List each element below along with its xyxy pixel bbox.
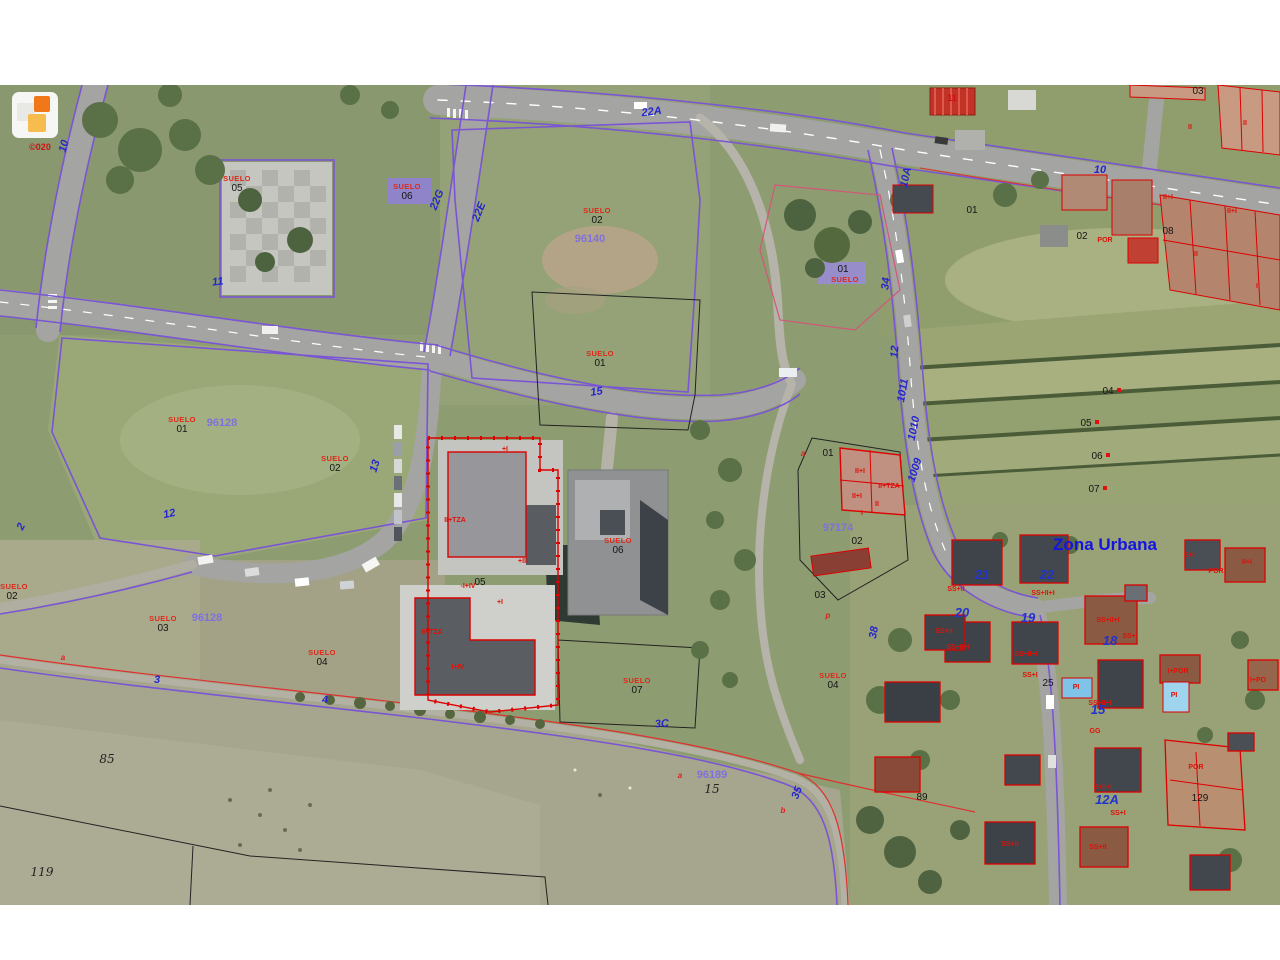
label-roadnum: 3C: [654, 717, 670, 730]
label-num: 06: [1091, 451, 1103, 462]
label-storey: SS+II: [935, 628, 952, 635]
logo-orange-square: [34, 96, 50, 112]
label-storey: PI: [1171, 692, 1178, 699]
label-suelo: SUELO: [831, 275, 859, 284]
label-num: 89: [916, 792, 928, 803]
label-copyright: ©020: [29, 142, 51, 152]
label-storey: SS+I: [1022, 672, 1037, 679]
label-suelo: SUELO: [321, 454, 349, 463]
label-reda: b: [781, 806, 786, 815]
label-storey: POR: [1208, 568, 1223, 575]
label-reda: a: [61, 653, 66, 662]
label-storey: II+TZA: [421, 629, 443, 636]
label-storey: SS+I: [1110, 810, 1125, 817]
label-housenum: 21: [974, 567, 989, 582]
label-num: 07: [631, 685, 643, 696]
label-storey: II+I: [1227, 208, 1237, 215]
label-num: 01: [176, 424, 188, 435]
label-num: 25: [1042, 678, 1054, 689]
label-storey: I: [861, 510, 863, 517]
label-storey: II+I: [852, 493, 862, 500]
label-storey: SS+II: [1001, 841, 1018, 848]
label-blacknum: 119: [31, 865, 54, 879]
label-storey: SS+II+I: [1088, 700, 1111, 707]
label-redbig: 11: [947, 93, 957, 103]
label-reda: a: [678, 771, 683, 780]
label-num: 02: [329, 463, 341, 474]
label-suelo: SUELO: [308, 648, 336, 657]
label-storey: POR: [1188, 764, 1203, 771]
label-num: 05: [1080, 418, 1092, 429]
label-num: 02: [6, 591, 18, 602]
map-viewport[interactable]: ©020SUELO05SUELO06SUELO02SUELO01SUELO01S…: [0, 0, 1280, 960]
label-num: 02: [851, 536, 863, 547]
logo-yellow-square: [28, 114, 46, 132]
label-storey: II: [1188, 124, 1192, 131]
label-purple: 96128: [192, 612, 223, 624]
label-num: 03: [157, 623, 169, 634]
label-suelo: SUELO: [0, 582, 28, 591]
label-purple: 96128: [207, 417, 238, 429]
label-purple: 97174: [823, 522, 854, 534]
label-num: 03: [1192, 86, 1204, 97]
label-storey: POR: [1097, 237, 1112, 244]
label-roadnum: 34: [879, 277, 892, 291]
label-storey: -I+IV: [461, 583, 476, 590]
label-purple: 96140: [575, 233, 606, 245]
label-housenum: 22: [1039, 567, 1055, 582]
label-storey: SS+I: [1122, 633, 1137, 640]
label-num: 06: [401, 191, 413, 202]
label-storey: +III: [518, 558, 528, 565]
label-roadnum: 10: [1094, 164, 1107, 176]
label-storey: II: [1194, 251, 1198, 258]
label-housenum: 19: [1021, 610, 1036, 625]
label-storey: SS+II+I: [1014, 651, 1037, 658]
label-num: 03: [814, 590, 826, 601]
label-storey: SS+II: [1089, 844, 1106, 851]
label-reda: p: [825, 611, 831, 620]
label-storey: I+PO: [1250, 677, 1267, 684]
label-housenum: 18: [1103, 633, 1118, 648]
label-storey: +I: [497, 599, 503, 606]
label-suelo: SUELO: [168, 415, 196, 424]
label-storey: GG: [1090, 728, 1101, 735]
label-purple: 96189: [697, 769, 728, 781]
label-num: 04: [316, 657, 328, 668]
label-num: 08: [1162, 226, 1174, 237]
label-storey: SS+II+I: [946, 644, 969, 651]
label-roadnum: 12: [889, 345, 902, 358]
label-storey: SS+II+I: [1096, 617, 1119, 624]
bottom-margin: [0, 905, 1280, 960]
label-storey: II: [1243, 120, 1247, 127]
label-storey: S+II: [1184, 552, 1197, 559]
label-suelo: SUELO: [819, 671, 847, 680]
label-zona-urbana: Zona Urbana: [1053, 535, 1157, 554]
label-storey: I+POR: [1167, 668, 1188, 675]
label-num: 01: [594, 358, 606, 369]
app-logo[interactable]: [12, 92, 58, 138]
label-storey: S+II+I: [1094, 784, 1113, 791]
label-roadnum: 4: [321, 694, 328, 706]
label-storey: II+I: [1163, 194, 1173, 201]
label-num: 06: [612, 545, 624, 556]
label-storey: SS+II+I: [1031, 590, 1054, 597]
label-num: 01: [822, 448, 834, 459]
label-num: 02: [591, 215, 603, 226]
label-storey: II+TZA: [444, 517, 466, 524]
label-roadnum: 22A: [640, 105, 663, 119]
label-storey: II: [875, 501, 879, 508]
label-storey: +I: [502, 446, 508, 453]
label-num: 129: [1192, 793, 1209, 804]
label-suelo: SUELO: [586, 349, 614, 358]
label-suelo: SUELO: [604, 536, 632, 545]
label-storey: I+IV: [452, 664, 465, 671]
label-num: 01: [966, 205, 978, 216]
label-suelo: SUELO: [623, 676, 651, 685]
label-storey: SS+II: [947, 586, 964, 593]
label-storey: II+I: [855, 468, 865, 475]
label-num: 02: [1076, 231, 1088, 242]
label-blacknum: 15: [704, 782, 719, 796]
label-suelo: SUELO: [393, 182, 421, 191]
label-reda: a: [801, 449, 806, 458]
label-storey: PI: [1073, 684, 1080, 691]
label-roadnum: 3: [154, 674, 160, 686]
cadastral-map[interactable]: ©020SUELO05SUELO06SUELO02SUELO01SUELO01S…: [0, 0, 1280, 960]
label-roadnum: 11: [211, 275, 224, 288]
label-housenum: 12A: [1095, 792, 1119, 807]
label-storey: II+I: [1242, 559, 1252, 566]
label-blacknum: 85: [99, 752, 114, 766]
label-housenum: 20: [954, 605, 970, 620]
label-num: 07: [1088, 484, 1100, 495]
top-margin: [0, 0, 1280, 85]
label-num: 04: [827, 680, 839, 691]
label-num: 05: [231, 183, 243, 194]
label-num: 05: [474, 577, 486, 588]
label-suelo: SUELO: [149, 614, 177, 623]
label-num: 04: [1102, 386, 1114, 397]
label-num: 01: [837, 264, 849, 275]
label-roadnum: 12: [162, 507, 176, 521]
label-storey: II: [1256, 283, 1260, 290]
label-suelo: SUELO: [583, 206, 611, 215]
label-storey: II+TZA: [878, 483, 900, 490]
label-suelo: SUELO: [223, 174, 251, 183]
